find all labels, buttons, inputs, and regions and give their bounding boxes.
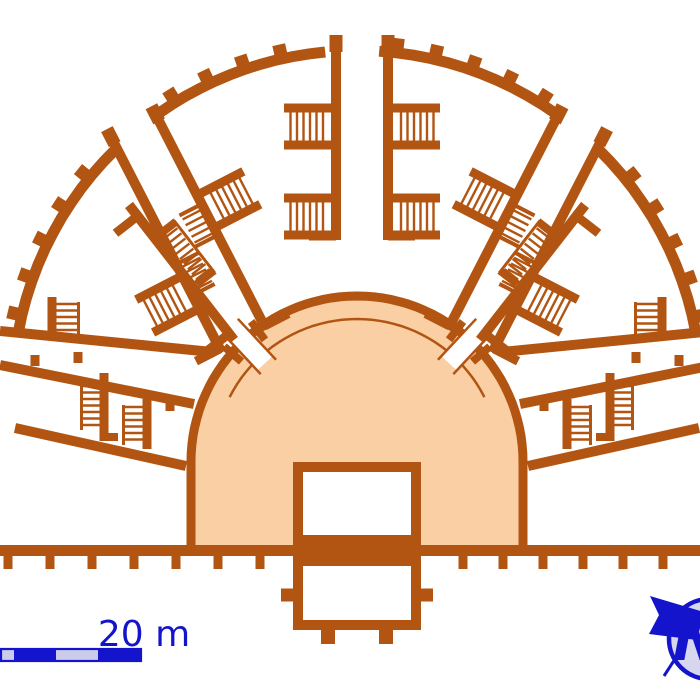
scale-label: 20 m xyxy=(98,614,190,655)
annotation-overlay: 20 m N xyxy=(0,0,700,700)
theatre-plan-figure: 20 m N xyxy=(0,0,700,700)
north-arrow-icon: N xyxy=(649,594,700,679)
scale-bar-segment xyxy=(14,650,56,660)
scale-bar-segment xyxy=(1,650,14,660)
north-label: N xyxy=(673,606,700,674)
scale-bar-segment xyxy=(56,650,98,660)
